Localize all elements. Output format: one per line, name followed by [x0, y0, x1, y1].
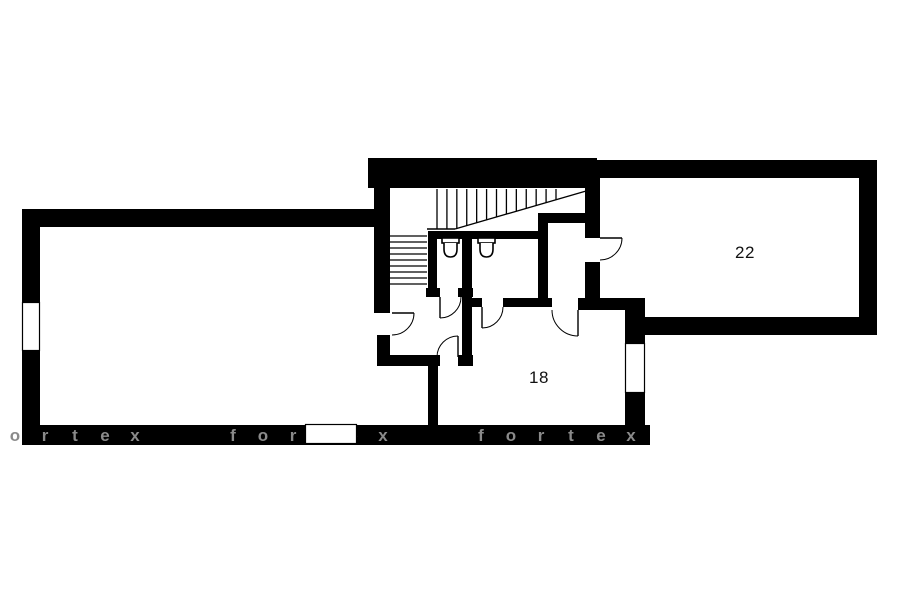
watermark-letter: x — [626, 426, 636, 445]
watermark-letter: t — [72, 426, 78, 445]
door — [552, 310, 578, 336]
door — [482, 307, 503, 328]
floorplan: fortexfortexfortex 22 18 — [0, 0, 900, 604]
watermark-letter: r — [42, 426, 49, 445]
room-label-22: 22 — [735, 243, 755, 263]
window — [306, 425, 357, 444]
room-label-18: 18 — [529, 368, 549, 388]
walls-layer — [22, 158, 877, 445]
watermark-letter: x — [378, 426, 388, 445]
watermark-letter: x — [130, 426, 140, 445]
door — [600, 238, 622, 260]
watermark-letter: t — [568, 426, 574, 445]
watermark-letter: e — [596, 426, 605, 445]
door — [392, 313, 414, 335]
floorplan-svg: fortexfortexfortex — [0, 0, 900, 604]
door — [440, 297, 461, 318]
watermark-letter: o — [258, 426, 268, 445]
watermark-letter: o — [506, 426, 516, 445]
door — [437, 336, 458, 357]
watermark-letter: e — [100, 426, 109, 445]
toilet-icon — [478, 238, 495, 257]
watermark-letter: r — [538, 426, 545, 445]
window — [23, 303, 40, 351]
watermark-letter: f — [230, 426, 236, 445]
watermark-letter: r — [290, 426, 297, 445]
windows-layer — [23, 303, 645, 444]
toilet-icon — [442, 238, 459, 257]
watermark-letter: f — [478, 426, 484, 445]
window — [626, 344, 645, 393]
watermark-letter: o — [10, 426, 20, 445]
